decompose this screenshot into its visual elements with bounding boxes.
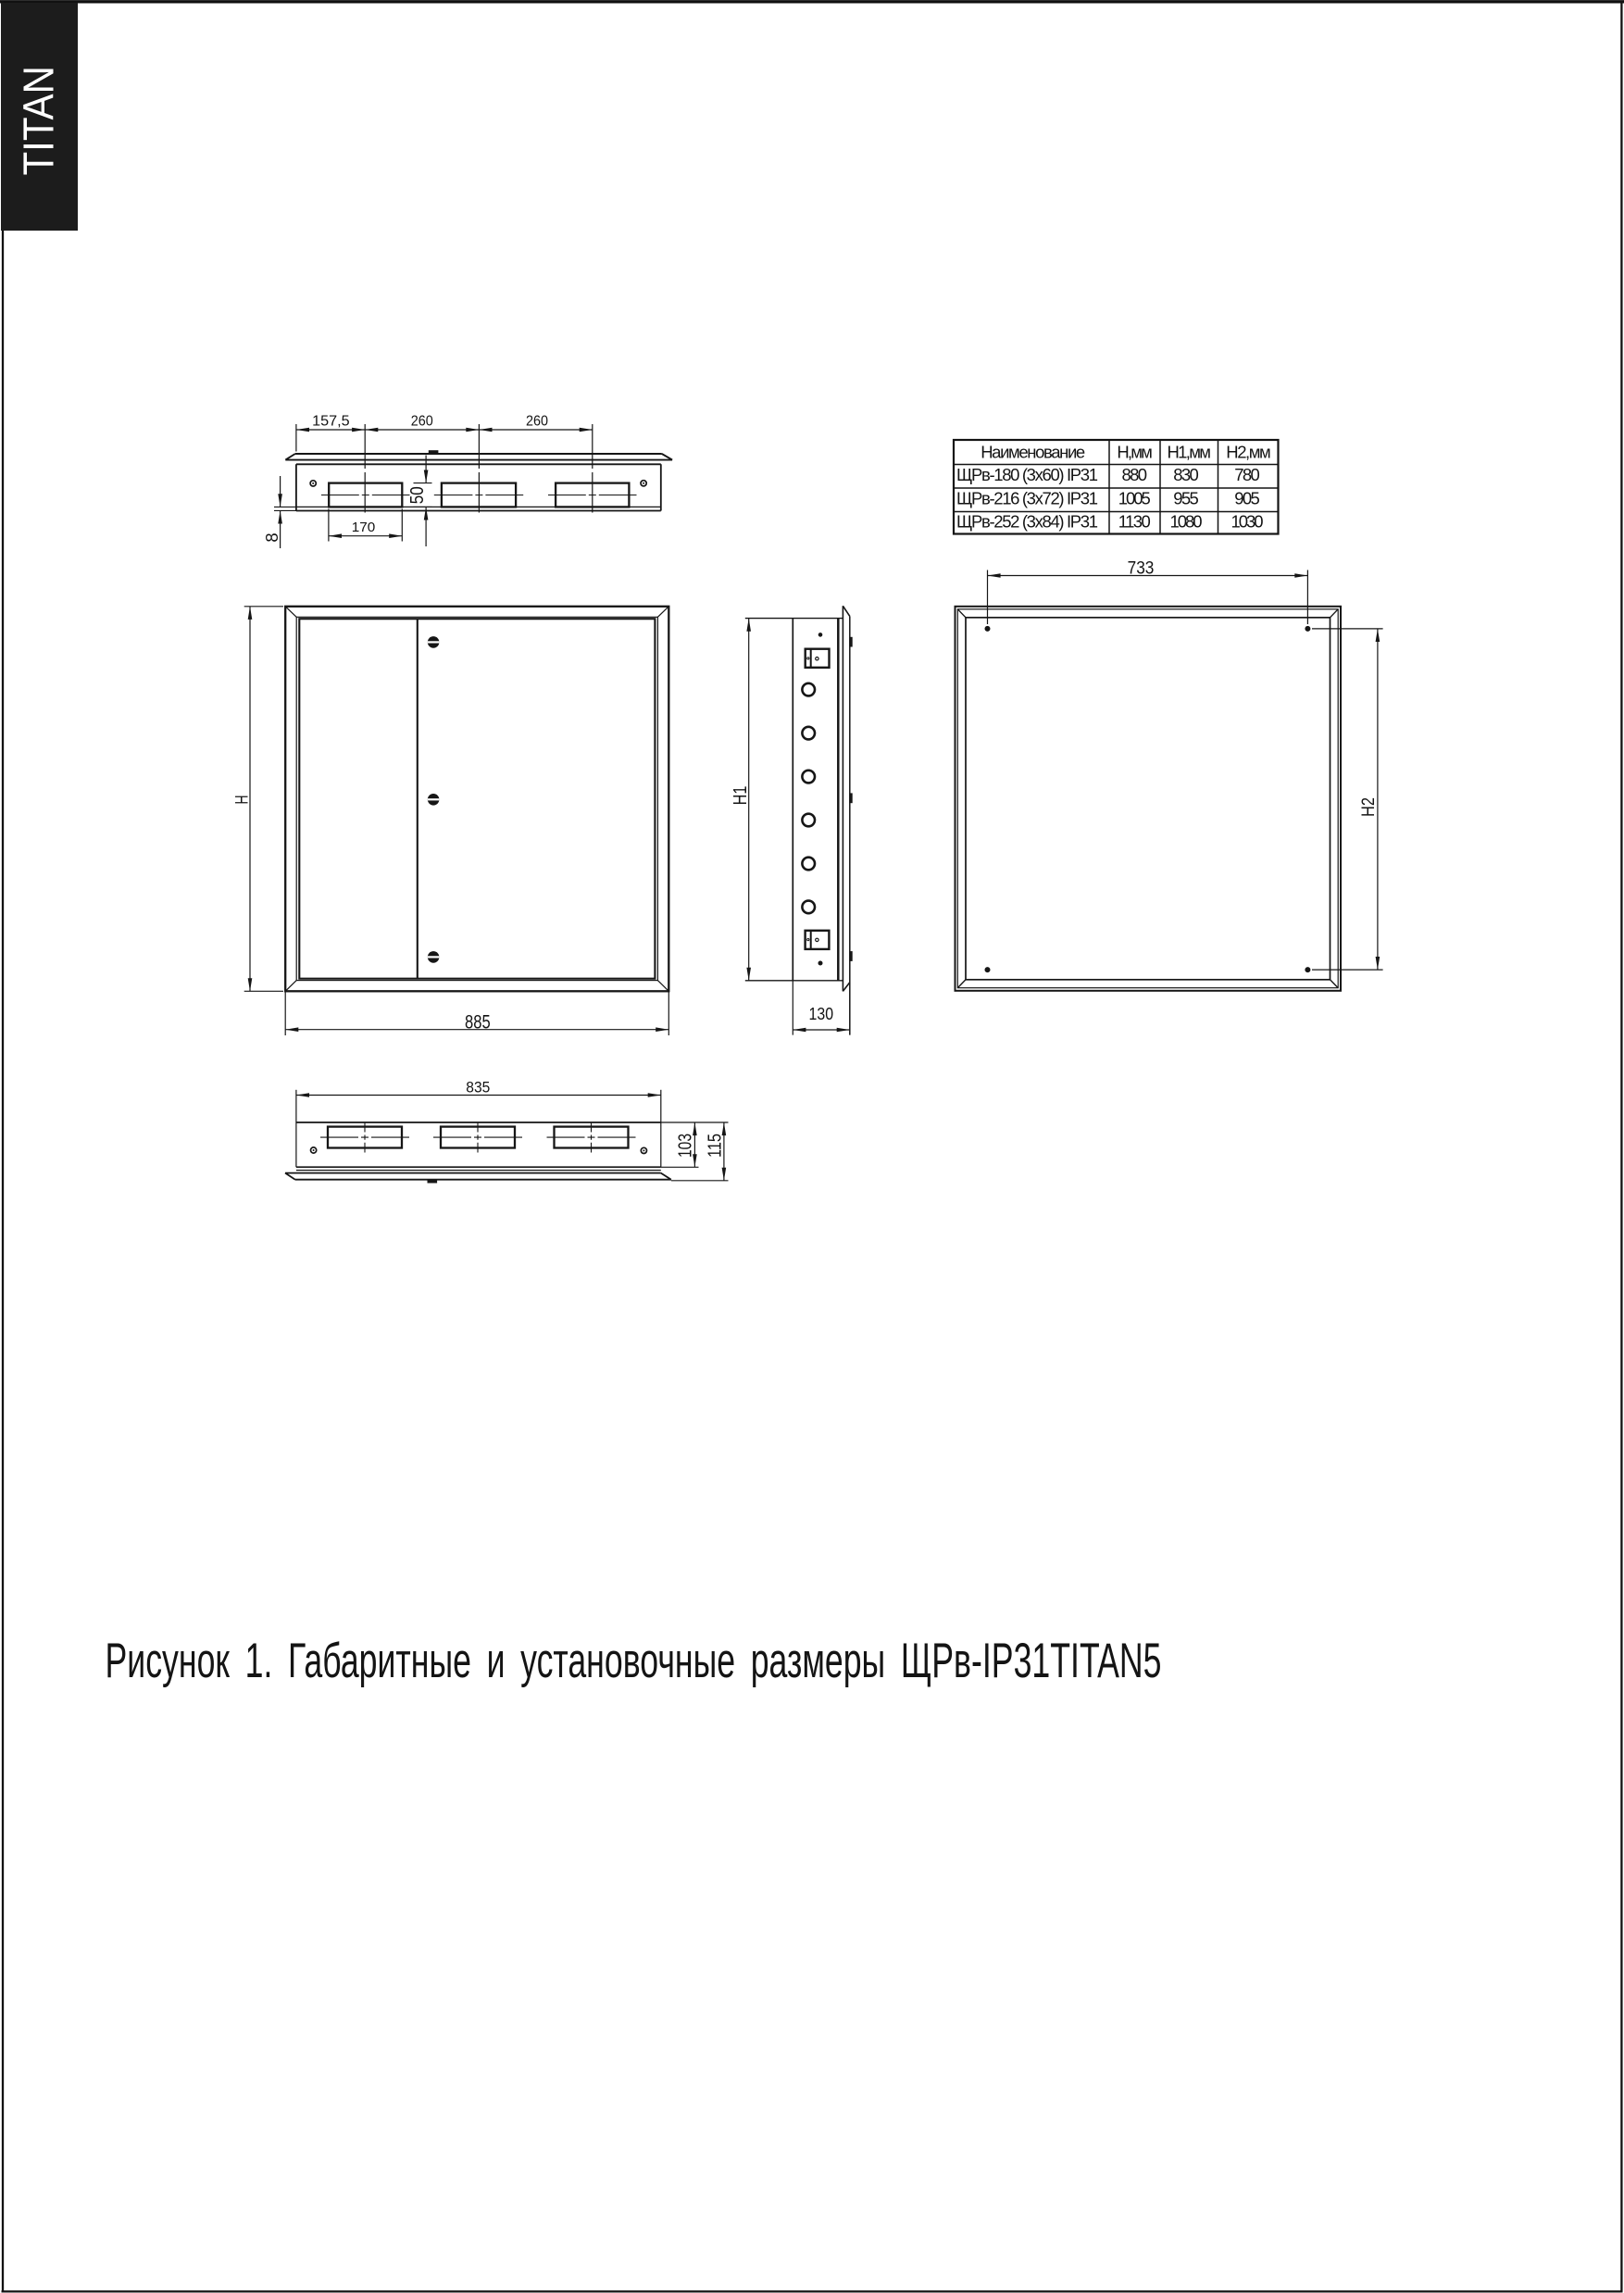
svg-text:103: 103 [675, 1134, 695, 1158]
svg-text:835: 835 [466, 1079, 490, 1096]
svg-text:115: 115 [706, 1134, 726, 1158]
svg-text:260: 260 [526, 414, 548, 430]
svg-text:170: 170 [352, 520, 376, 535]
svg-text:955: 955 [1173, 488, 1199, 507]
svg-text:50: 50 [407, 486, 428, 504]
svg-text:1030: 1030 [1231, 511, 1264, 531]
svg-text:ЩРв-216 (3х72) IP31: ЩРв-216 (3х72) IP31 [956, 488, 1098, 507]
svg-text:TITAN: TITAN [15, 66, 63, 176]
svg-text:260: 260 [411, 414, 433, 430]
svg-text:780: 780 [1234, 465, 1260, 484]
svg-text:1005: 1005 [1118, 488, 1151, 507]
svg-text:1080: 1080 [1170, 511, 1203, 531]
svg-text:Рисунок 1. Габаритные и устано: Рисунок 1. Габаритные и установочные раз… [106, 1634, 1162, 1688]
svg-text:885: 885 [465, 1012, 491, 1034]
svg-text:905: 905 [1234, 488, 1260, 507]
svg-text:Наименование: Наименование [981, 443, 1085, 462]
svg-text:733: 733 [1128, 558, 1155, 578]
svg-text:ЩРв-252 (3х84) IP31: ЩРв-252 (3х84) IP31 [956, 511, 1098, 531]
svg-text:Н,мм: Н,мм [1117, 443, 1153, 462]
svg-text:8: 8 [262, 533, 281, 542]
svg-text:H1: H1 [731, 786, 751, 806]
svg-text:Н2,мм: Н2,мм [1226, 443, 1271, 462]
svg-text:Н1,мм: Н1,мм [1167, 443, 1211, 462]
svg-text:157,5: 157,5 [312, 414, 350, 430]
svg-text:880: 880 [1122, 465, 1148, 484]
svg-text:130: 130 [809, 1005, 834, 1023]
svg-text:H: H [233, 796, 253, 805]
svg-text:830: 830 [1173, 465, 1199, 484]
svg-text:H2: H2 [1358, 797, 1379, 817]
svg-text:1130: 1130 [1118, 511, 1151, 531]
svg-text:ЩРв-180 (3х60) IP31: ЩРв-180 (3х60) IP31 [956, 465, 1098, 484]
